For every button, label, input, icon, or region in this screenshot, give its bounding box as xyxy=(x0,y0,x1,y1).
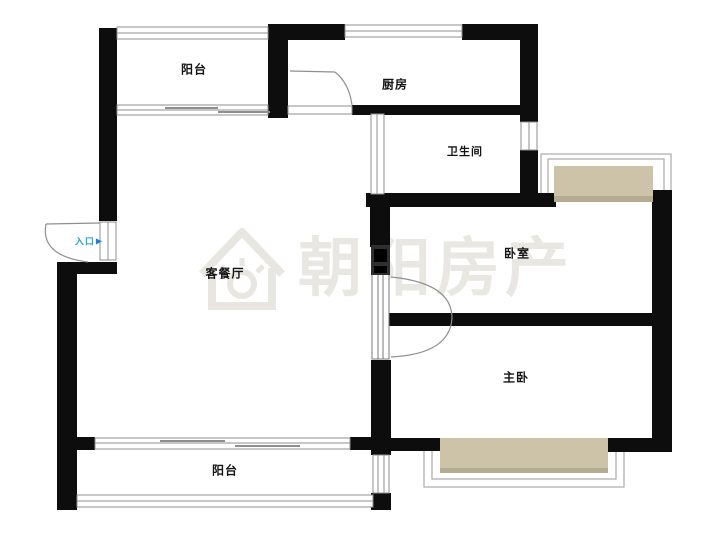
room-label-living-dining: 客餐厅 xyxy=(205,265,244,282)
room-label-kitchen: 厨房 xyxy=(382,76,408,93)
floorplan-canvas: 朝阳房产 xyxy=(0,0,720,540)
entrance-arrow-icon: ▶ xyxy=(96,237,103,245)
floorplan-drawing xyxy=(0,0,720,540)
bay-window-sill-edges xyxy=(440,196,653,473)
room-label-balcony-top: 阳台 xyxy=(181,61,207,78)
room-label-master-bedroom: 主卧 xyxy=(503,369,529,386)
entrance-text: 入口 xyxy=(75,235,95,248)
entrance-label: 入口 ▶ xyxy=(75,235,103,248)
room-label-bedroom: 卧室 xyxy=(504,245,530,262)
room-label-bathroom: 卫生间 xyxy=(447,143,483,159)
walls xyxy=(57,24,672,510)
door-frame-block xyxy=(371,245,390,275)
room-label-balcony-bottom: 阳台 xyxy=(212,462,238,479)
windows xyxy=(77,25,537,507)
